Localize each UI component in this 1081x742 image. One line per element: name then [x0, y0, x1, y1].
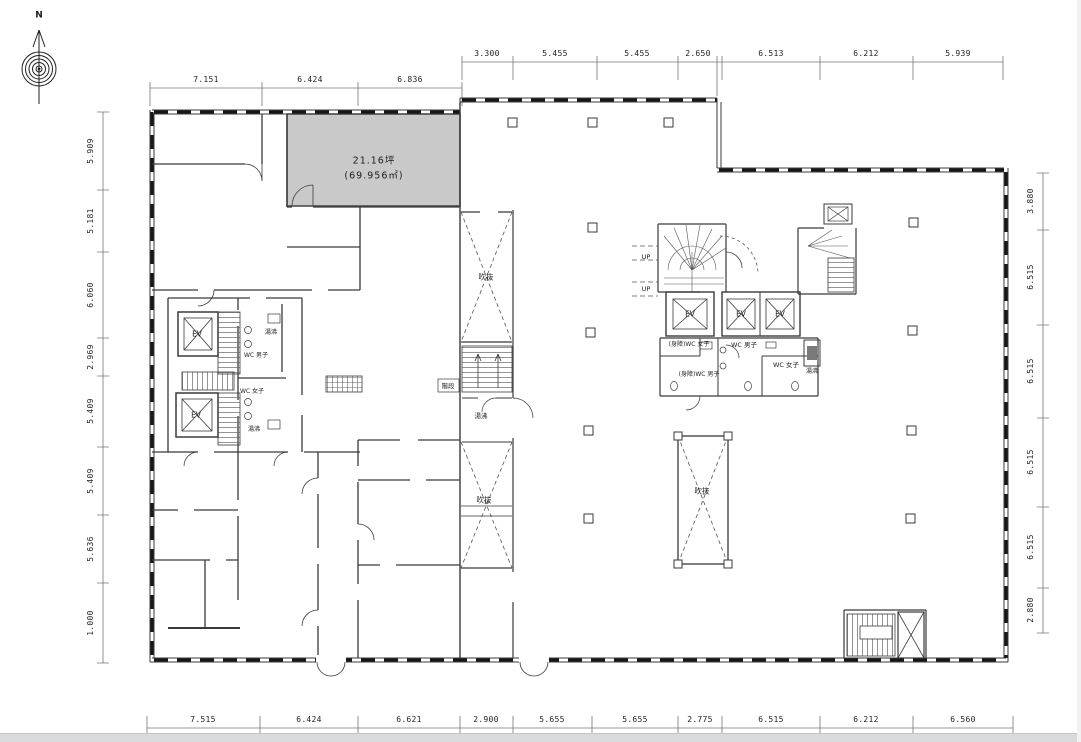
- room-label-wc-accessible-women: (身障)WC 女子: [669, 342, 710, 348]
- dim-bottom-8: 6.212: [853, 716, 879, 724]
- right-atrium: [674, 432, 732, 568]
- vertical-scrollbar[interactable]: [1077, 0, 1081, 742]
- room-label-wc-women-left: WC 女子: [240, 389, 264, 395]
- outer-wall-window-hatch: [152, 100, 1006, 660]
- dim-left-0: 5.909: [87, 138, 95, 164]
- dim-top-right-0: 3.300: [474, 50, 500, 58]
- room-label-up-2: UP: [642, 286, 651, 293]
- dim-bottom-3: 2.900: [473, 716, 499, 724]
- highlighted-room-area-tsubo: 21.16坪: [353, 156, 396, 166]
- compass-north-label: N: [35, 12, 43, 21]
- room-label-atrium-2: 吹抜: [477, 496, 492, 504]
- room-label-ev-left-2: EV: [191, 411, 201, 419]
- dim-bottom-2: 6.621: [396, 716, 422, 724]
- dim-bottom-0: 7.515: [190, 716, 216, 724]
- dim-top-right-6: 5.939: [945, 50, 971, 58]
- column-marks: [508, 118, 918, 523]
- dim-right-0: 3.880: [1027, 188, 1035, 214]
- room-label-atrium-3: 吹抜: [695, 487, 710, 495]
- bottom-right-stair: [844, 610, 926, 658]
- dim-bottom-1: 6.424: [296, 716, 322, 724]
- dim-bottom-9: 6.560: [950, 716, 976, 724]
- dim-top-right-1: 5.455: [542, 50, 568, 58]
- room-label-wc-men-left: WC 男子: [244, 353, 268, 359]
- room-label-ev-right-2: EV: [736, 310, 746, 318]
- room-label-wc-men-right: WC 男子: [731, 342, 757, 349]
- room-label-ev-left-1: EV: [192, 330, 202, 338]
- room-label-hot-water-right: 湯沸: [806, 369, 818, 375]
- room-label-up-1: UP: [642, 254, 651, 261]
- outer-walls: [150, 98, 1008, 662]
- dim-right-5: 2.880: [1027, 597, 1035, 623]
- dim-bottom-6: 2.775: [687, 716, 713, 724]
- dim-right-2: 6.515: [1027, 358, 1035, 384]
- dim-left-3: 2.969: [87, 344, 95, 370]
- dim-bottom-5: 5.655: [622, 716, 648, 724]
- dim-bottom-7: 6.515: [758, 716, 784, 724]
- dim-right-4: 6.515: [1027, 534, 1035, 560]
- dim-top-right-5: 6.212: [853, 50, 879, 58]
- dim-left-2: 6.060: [87, 282, 95, 308]
- dim-top-left-1: 6.424: [297, 76, 323, 84]
- right-core: [632, 204, 856, 410]
- dim-top-right-2: 5.455: [624, 50, 650, 58]
- room-label-ev-right-1: EV: [685, 310, 695, 318]
- dim-left-1: 5.181: [87, 208, 95, 234]
- dim-right-3: 6.515: [1027, 449, 1035, 475]
- dim-top-right-4: 6.513: [758, 50, 784, 58]
- dim-bottom-4: 5.655: [539, 716, 565, 724]
- room-label-wc-women-right: WC 女子: [773, 362, 799, 369]
- compass-rose-icon: [22, 30, 56, 104]
- horizontal-scrollbar[interactable]: [0, 733, 1081, 742]
- dim-top-left-2: 6.836: [397, 76, 423, 84]
- room-label-hot-water-left-1: 湯沸: [265, 330, 277, 336]
- room-label-ev-right-3: EV: [775, 310, 785, 318]
- dim-left-6: 5.636: [87, 536, 95, 562]
- room-label-wc-accessible-men: (身障)WC 男子: [679, 372, 720, 378]
- room-label-stairs: 階段: [442, 383, 455, 390]
- room-label-hot-water-middle: 湯沸: [475, 413, 488, 420]
- dim-left-4: 5.409: [87, 398, 95, 424]
- dim-right-1: 6.515: [1027, 264, 1035, 290]
- floor-plan-canvas: N 7.151 6.424 6.836 3.300 5.455 5.455 2.…: [0, 0, 1081, 742]
- dim-left-5: 5.409: [87, 468, 95, 494]
- room-label-atrium-1: 吹抜: [479, 273, 494, 281]
- room-label-hot-water-left-2: 湯沸: [248, 427, 260, 433]
- floor-plan-drawing: [0, 0, 1081, 742]
- dim-top-left-0: 7.151: [193, 76, 219, 84]
- dim-top-right-3: 2.650: [685, 50, 711, 58]
- highlighted-room-area-m2: (69.956㎡): [344, 171, 403, 181]
- dim-left-7: 1.000: [87, 610, 95, 636]
